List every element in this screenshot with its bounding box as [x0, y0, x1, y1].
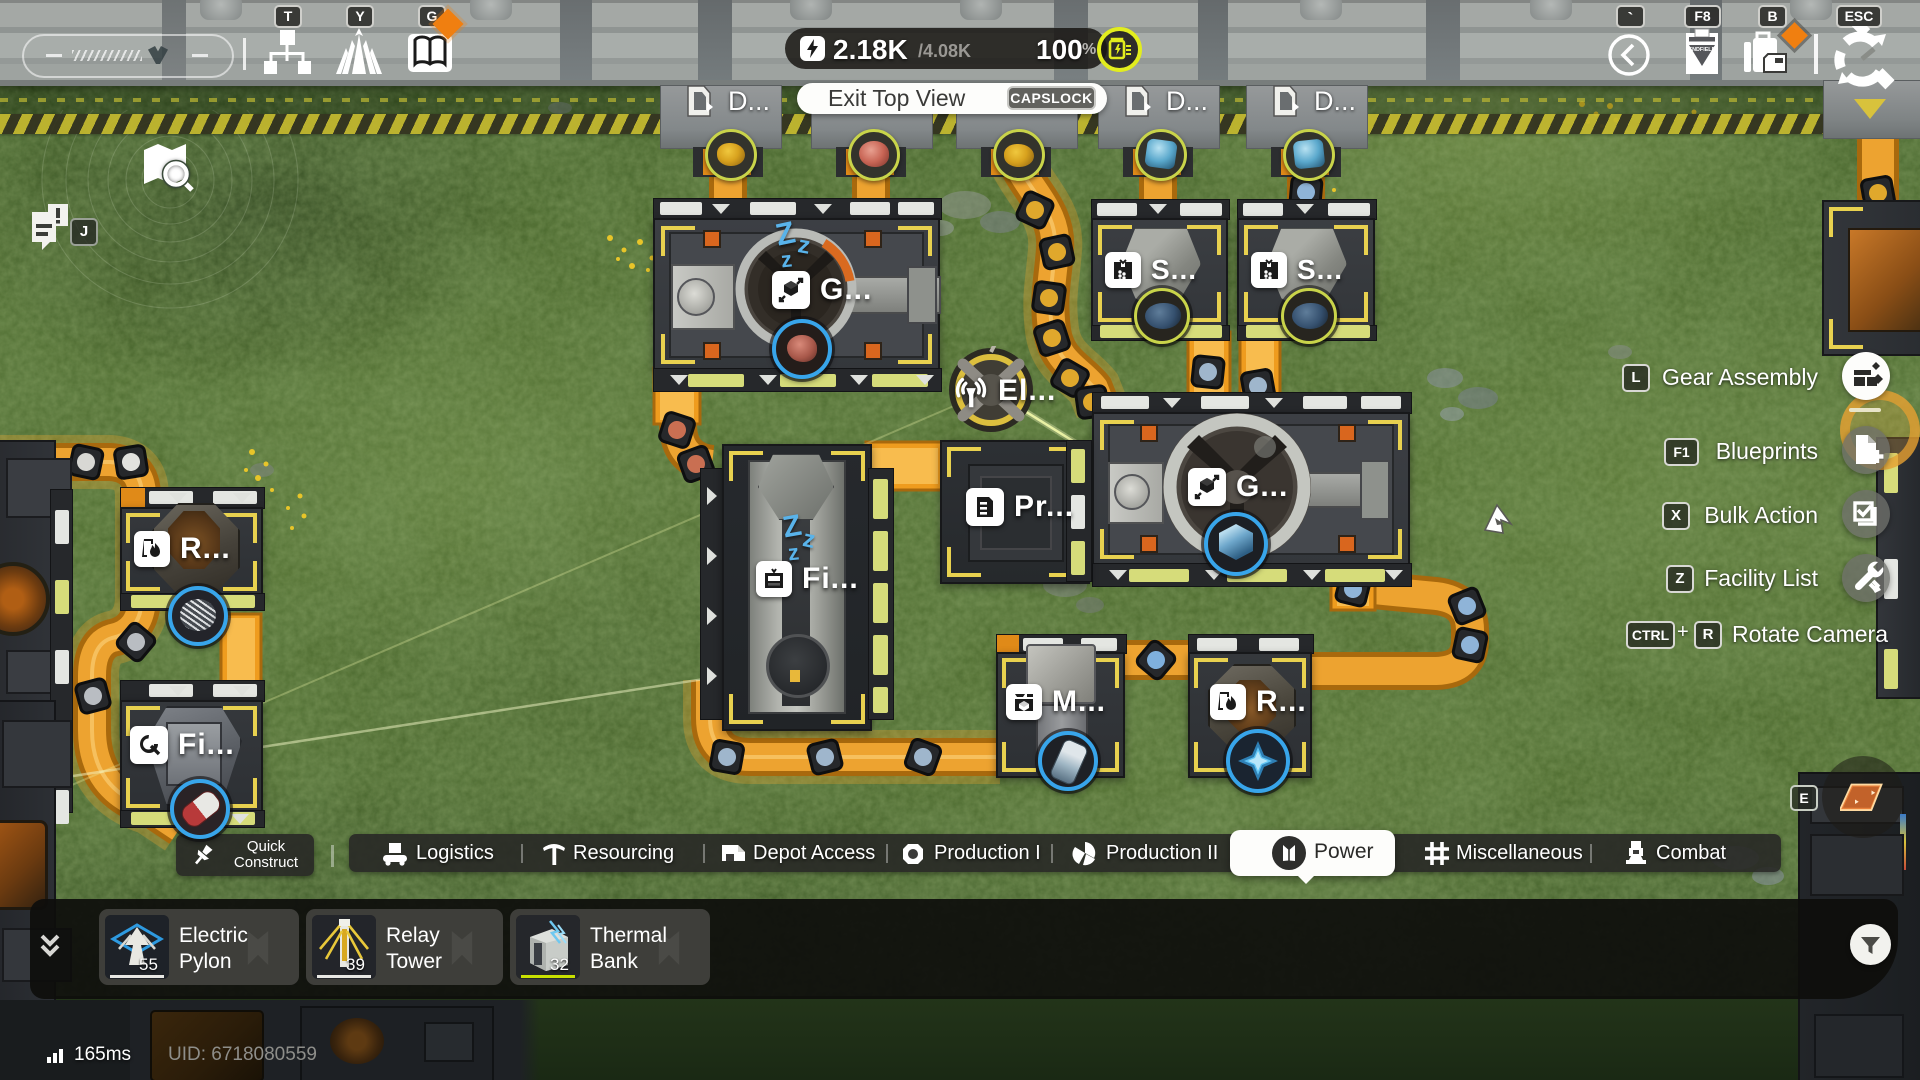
- svg-text:ENDFIELD: ENDFIELD: [1689, 47, 1716, 53]
